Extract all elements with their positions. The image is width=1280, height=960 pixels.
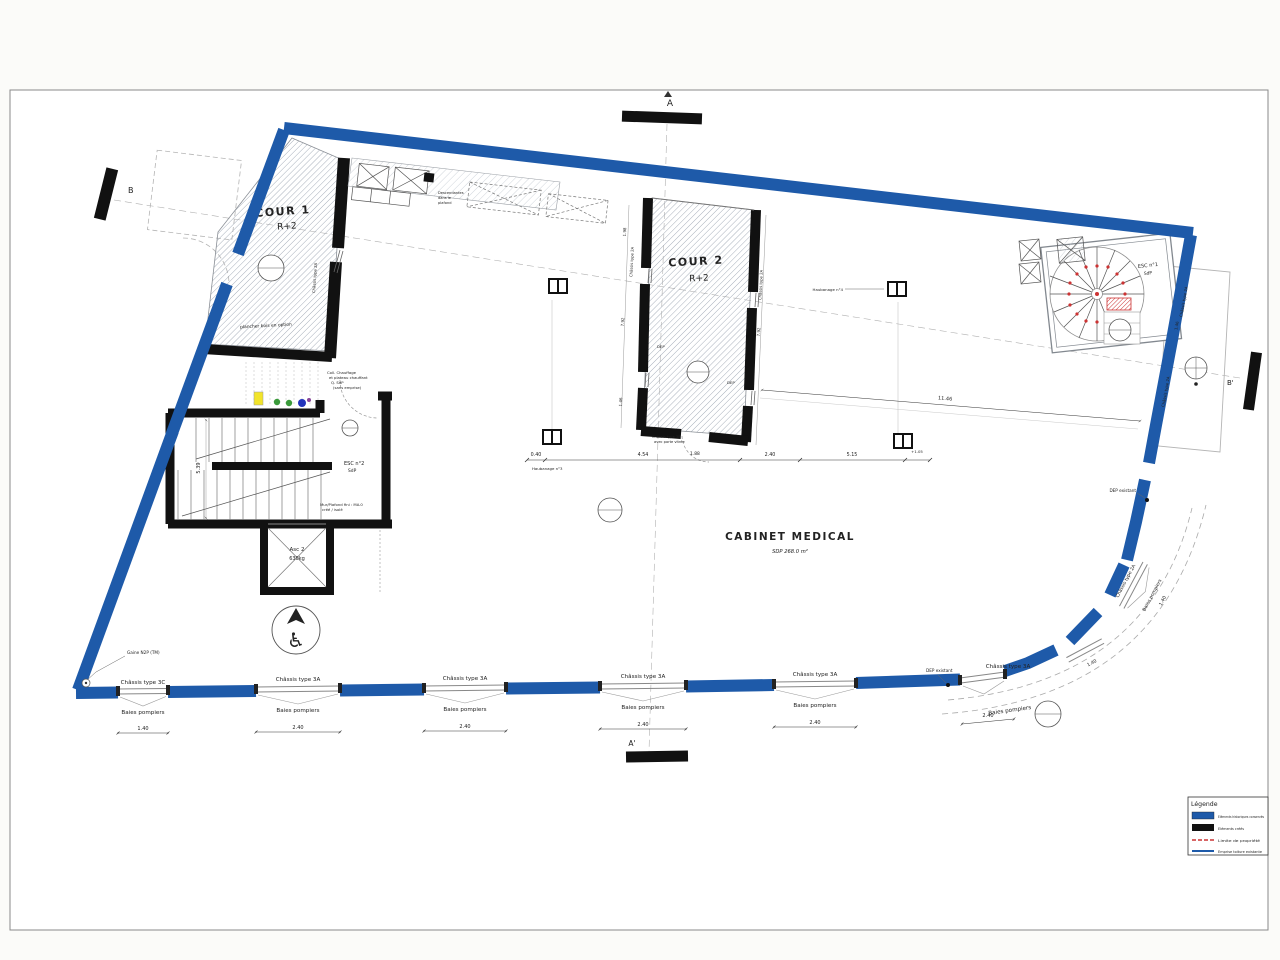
section-label-a: A (667, 99, 674, 109)
utility-marker-green-2 (286, 400, 292, 406)
dep-existant-bottom-label: DEP existant (926, 668, 953, 673)
dim-240m: 2.40 (765, 452, 776, 458)
dim-1146: 11.46 (938, 395, 953, 402)
cour2-dep-left: DEP (657, 344, 665, 349)
dep-existant-right-label: DEP existant (1109, 488, 1136, 493)
section-label-b-prime: B' (1227, 379, 1234, 387)
descendantes-note-3: plafond (438, 201, 452, 205)
cour2-dim-792: 7.92 (620, 317, 625, 327)
cour2-dim-792b: 7.92 (756, 327, 761, 337)
cour1-level: R+2 (277, 221, 297, 232)
cour2-dep-right: DEP (727, 380, 735, 385)
window-2-type: Châssis type 3A (276, 676, 321, 683)
haubanage-3-label: Haubanage n°3 (532, 466, 563, 471)
window-3-type: Châssis type 3A (443, 675, 488, 682)
window-1-type: Châssis type 3C (121, 679, 166, 686)
floor-plan-sheet: COUR 1 R+2 plancher bois en option Châss… (0, 0, 1280, 960)
coll-note-4: (sans emprise) (333, 385, 362, 390)
legend-title: Légende (1191, 800, 1218, 808)
window-1-dim: 1.40 (137, 726, 148, 732)
floor-plan-drawing: COUR 1 R+2 plancher bois en option Châss… (0, 0, 1280, 960)
window-4-type: Châssis type 3A (621, 673, 666, 680)
window-1-baies: Baies pompiers (121, 710, 164, 716)
esc2-label: ESC n°2 (344, 461, 364, 467)
utility-marker-yellow (254, 392, 263, 405)
esc1-sub: SdP (1144, 270, 1153, 277)
window-6-dim: 2.40 (982, 713, 993, 719)
window-5-type: Châssis type 3A (793, 671, 838, 678)
haubanage-4-label: Haubanage n°4 (813, 287, 844, 292)
section-label-a-prime: A' (628, 739, 635, 748)
utility-marker-purple (307, 398, 311, 402)
window-2-baies: Baies pompiers (276, 708, 319, 714)
gallery-shaft-marker (423, 172, 434, 182)
dim-515: 5.15 (847, 452, 858, 458)
window-3-dim: 2.40 (459, 724, 470, 730)
window-4-baies: Baies pompiers (621, 705, 664, 711)
cour1-wall-right-lower (330, 262, 336, 358)
esc2-sub: SdP (348, 468, 357, 474)
window-2-dim: 2.40 (292, 725, 303, 731)
utility-marker-green-1 (274, 399, 280, 405)
dim-105: +1.05 (911, 449, 923, 454)
window-5-dim: 2.40 (809, 720, 820, 726)
wheelchair-icon: ♿ (287, 628, 305, 652)
legend: Légende Eléments historiques conservés E… (1188, 797, 1268, 855)
window-6-type: Châssis type 3A (986, 663, 1031, 670)
legend-item-4: Emprise toiture existante (1218, 850, 1262, 854)
dim-454: 4.54 (638, 452, 649, 458)
cour2-level: R+2 (689, 273, 709, 284)
window-3-baies: Baies pompiers (443, 707, 486, 713)
cour2-door-dim: 1.88 (690, 451, 700, 457)
dim-040: 0.40 (531, 452, 542, 458)
legend-swatch-black (1192, 824, 1214, 831)
cabinet-area: SDP 268.0 m² (772, 549, 808, 555)
cabinet-name: CABINET MEDICAL (725, 531, 855, 543)
utility-marker-blue (298, 399, 306, 407)
mur-note-2: créé / isolé (322, 507, 343, 512)
cour2-door-note-2: avec porte vitrée (654, 440, 686, 444)
legend-item-3: Limite de propriété (1218, 839, 1260, 843)
window-4-dim: 2.40 (637, 722, 648, 728)
stair-opening-marker (1107, 298, 1131, 310)
elevator-load: 630kg (289, 556, 305, 562)
cour2-door-note-1: Châssis type 3B (652, 435, 681, 439)
descendantes-note-2: dans le (438, 196, 452, 200)
cour1-wall-right-upper (338, 158, 344, 248)
section-bar-a-prime (626, 750, 688, 762)
gaine-label: Gaine N2P (TM) (127, 650, 160, 655)
legend-item-2: Eléments créés (1218, 827, 1244, 831)
section-label-b: B (128, 186, 134, 195)
window-5-baies: Baies pompiers (793, 703, 836, 709)
legend-swatch-blue (1192, 812, 1214, 819)
cour2-dim-146: 1.46 (618, 397, 623, 407)
cour2-dim-198: 1.98 (622, 227, 627, 237)
elevator-label: Asc 2 (290, 547, 305, 553)
legend-item-1: Eléments historiques conservés (1218, 815, 1264, 819)
descendantes-note-1: Descendantes (438, 191, 464, 195)
esc2-dim: 5.39 (196, 462, 202, 473)
